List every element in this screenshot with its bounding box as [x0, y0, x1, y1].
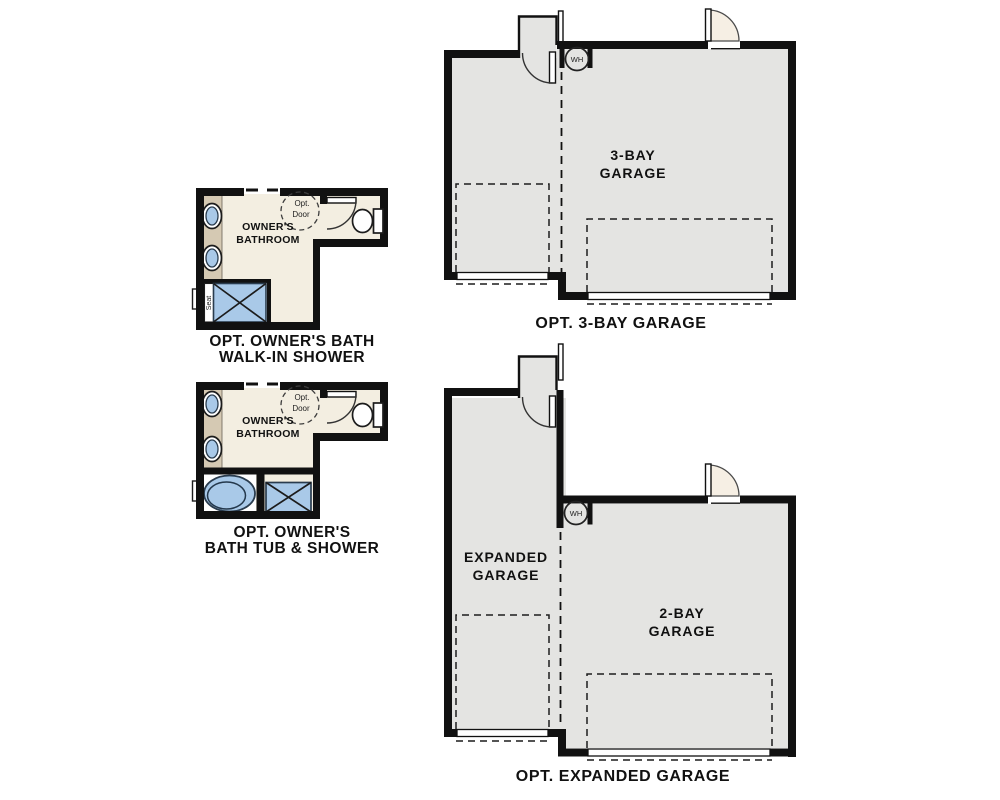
entry-vestibule [519, 344, 563, 398]
floorplan-canvas: Seat Opt. Door [0, 0, 1000, 800]
svg-text:WH: WH [570, 509, 583, 518]
sink-icon [203, 437, 222, 462]
svg-text:Door: Door [292, 404, 310, 413]
room-label: 2-BAY [659, 605, 704, 621]
plan-caption: OPT. 3-BAY GARAGE [535, 315, 706, 332]
room-label: GARAGE [473, 567, 540, 583]
room-label: BATHROOM [236, 428, 299, 440]
toilet-icon [353, 209, 384, 233]
room-label: GARAGE [649, 623, 716, 639]
svg-text:Door: Door [292, 210, 310, 219]
room-label: GARAGE [600, 165, 667, 181]
svg-text:WH: WH [571, 55, 584, 64]
entry-vestibule [519, 11, 563, 58]
plan-expanded-garage: WH EXPANDED GARAGE 2-BAY GARAGE OPT. EXP… [444, 344, 796, 785]
room-label: 3-BAY [610, 147, 655, 163]
room-label: OWNER'S [242, 221, 294, 233]
floorplan-options-sheet: Seat Opt. Door [0, 0, 1000, 800]
plan-3bay-garage: WH 3-BAY GARAGE OPT. 3-BAY GARAGE [444, 9, 796, 332]
plan-caption: OPT. OWNER'S [234, 524, 351, 541]
room-label: OWNER'S [242, 415, 294, 427]
plan-bath-walkin-shower: Seat Opt. Door [193, 188, 389, 366]
exterior-door-swing [706, 464, 741, 503]
plan-caption: BATH TUB & SHOWER [205, 540, 379, 557]
shower-icon [266, 483, 311, 513]
room-label: EXPANDED [464, 549, 548, 565]
plan-caption: OPT. EXPANDED GARAGE [516, 768, 730, 785]
garage-door [457, 273, 548, 280]
room-label: BATHROOM [236, 234, 299, 246]
toilet-icon [353, 403, 384, 427]
wall-stub [559, 344, 564, 380]
sink-icon [203, 204, 222, 229]
exterior-door-swing [706, 9, 741, 49]
svg-text:Opt.: Opt. [294, 393, 309, 402]
plan-caption: WALK-IN SHOWER [219, 349, 365, 366]
plan-bath-tub-shower: Opt. Door OWNER'S BATHROOM OPT. OWNER'S … [193, 382, 389, 557]
seat-label: Seat [206, 296, 213, 310]
garage-door [457, 730, 548, 737]
sink-icon [203, 246, 222, 271]
sink-icon [203, 392, 222, 417]
svg-text:Opt.: Opt. [294, 199, 309, 208]
garage-door [588, 749, 770, 756]
plan-caption: OPT. OWNER'S BATH [209, 333, 374, 350]
garage-door [588, 293, 770, 300]
